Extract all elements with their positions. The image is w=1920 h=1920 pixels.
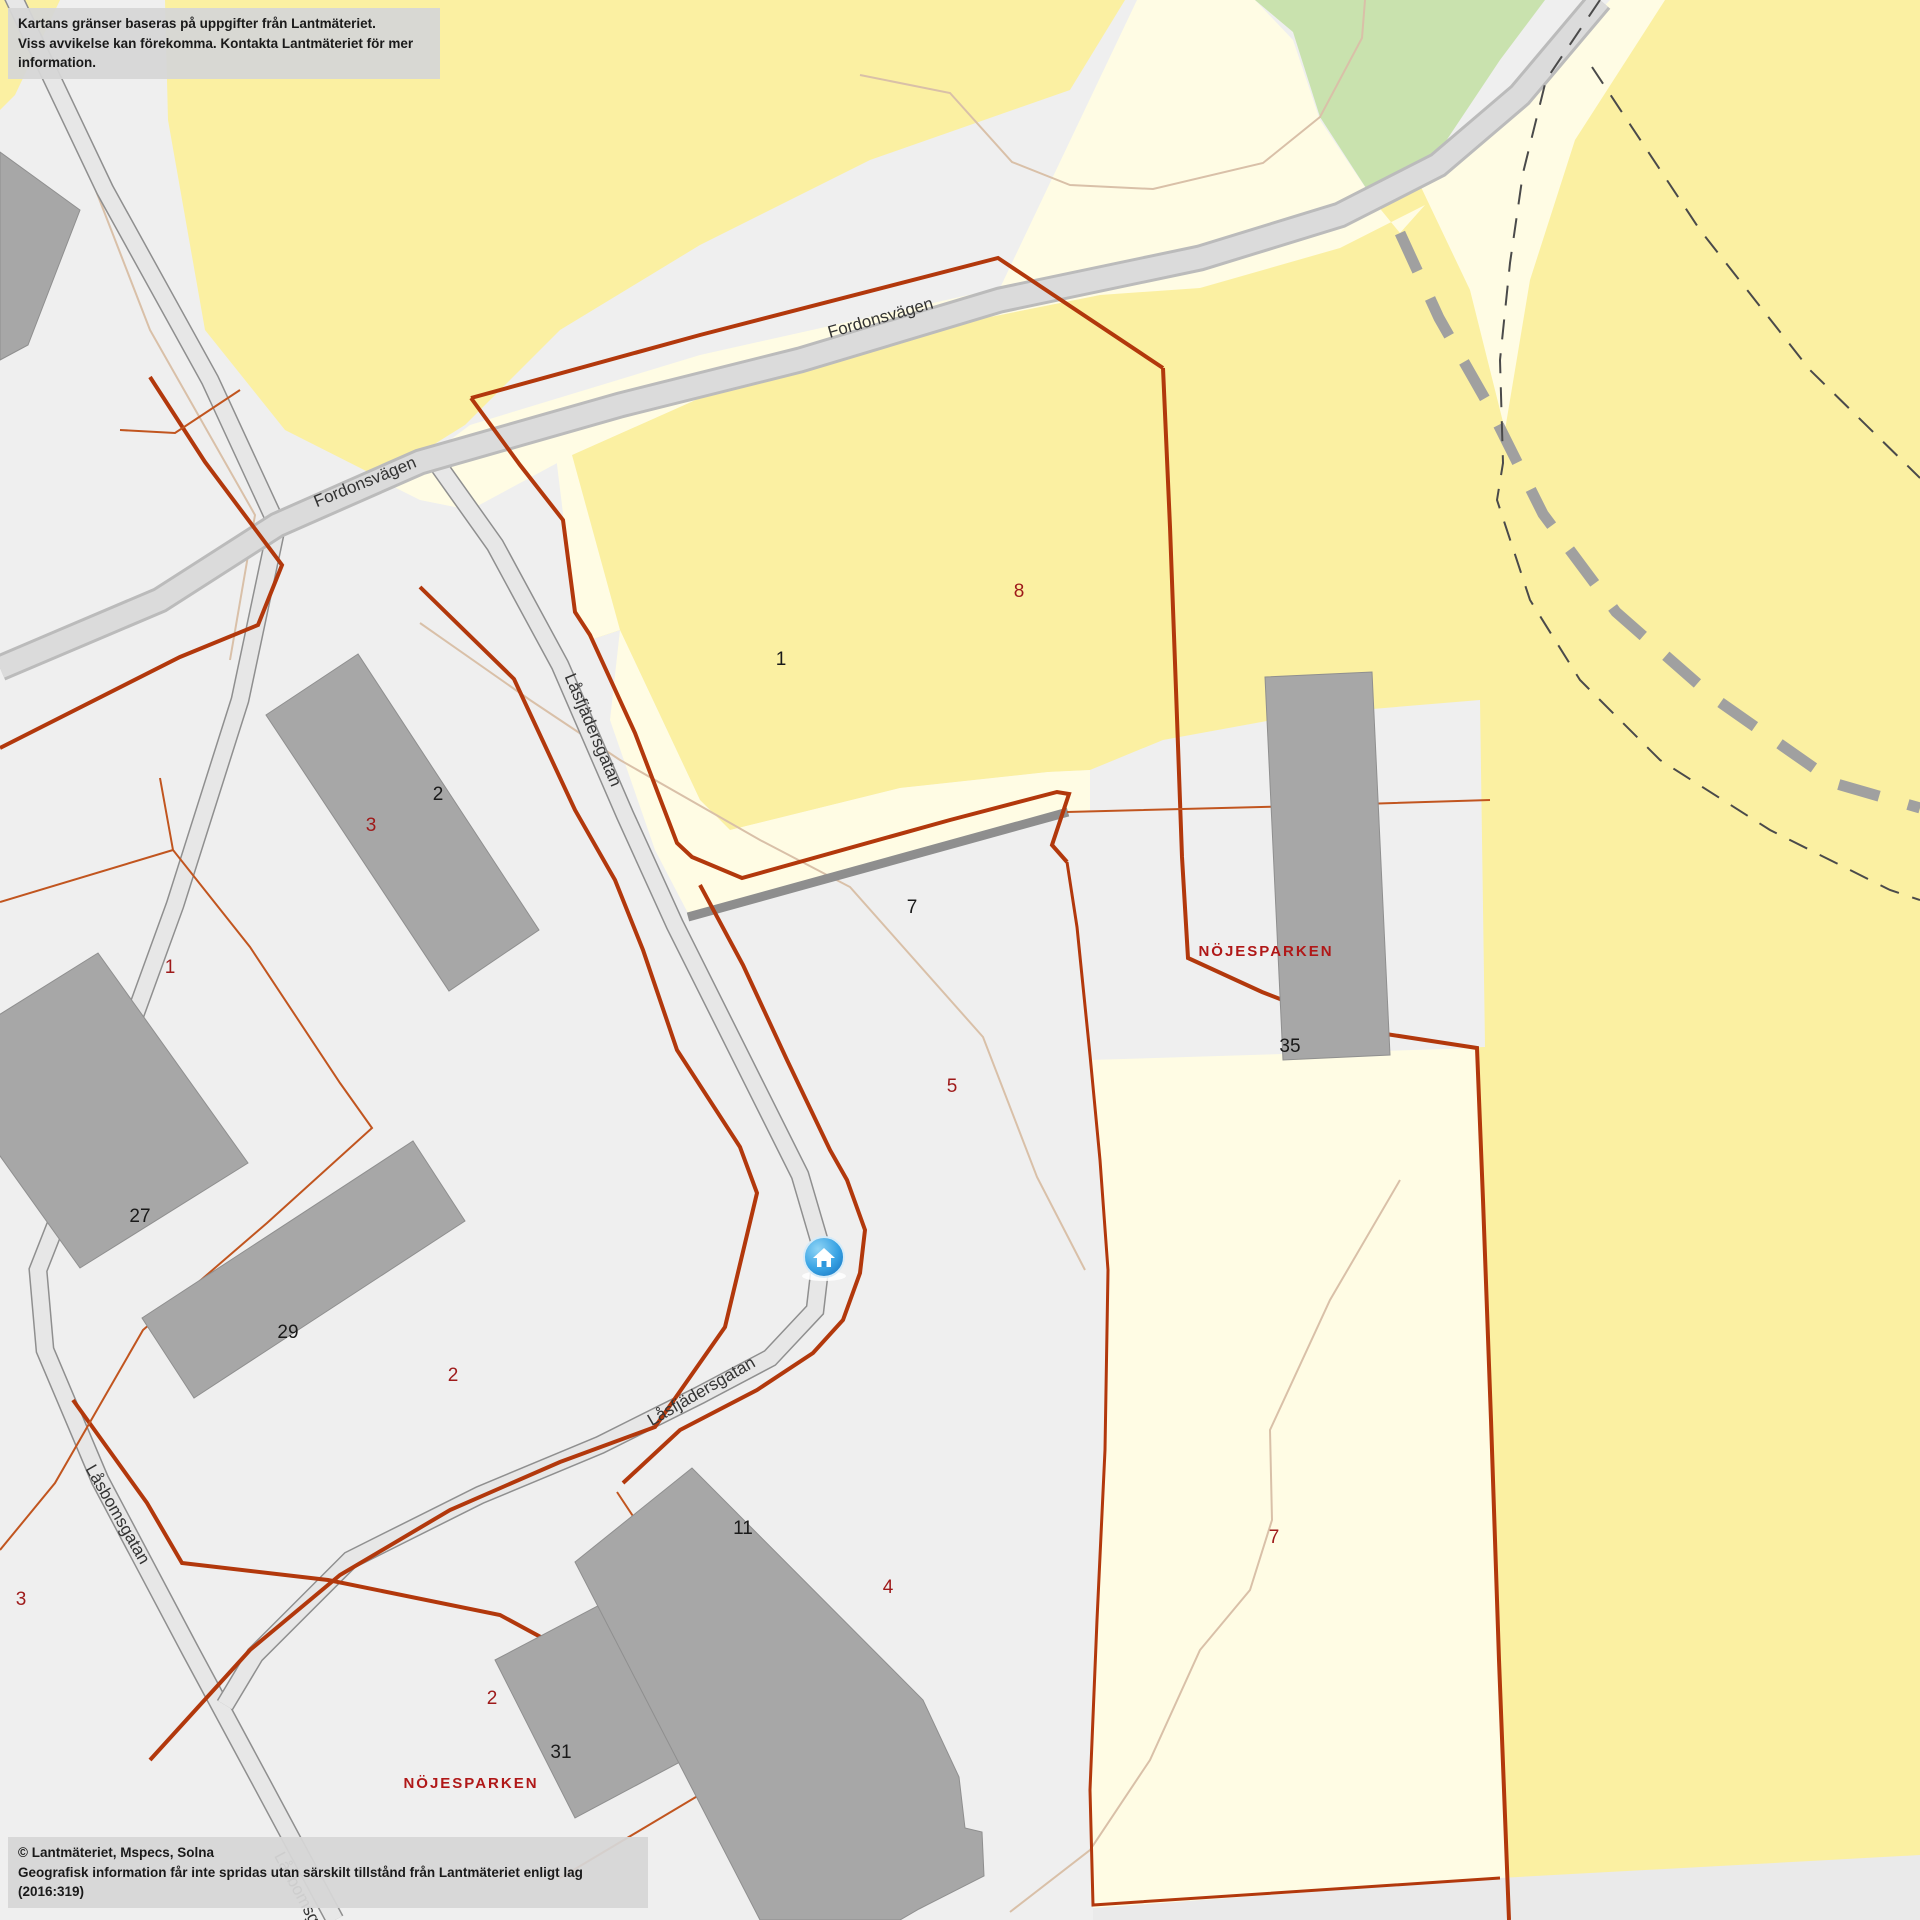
parcel-number-31: 31 [550,1742,571,1763]
parcel-number-11: 11 [733,1518,753,1539]
parcel-number-35: 35 [1279,1036,1300,1057]
map-graphic: Fordonsvägen Fordonsvägen Låsfjädersgata… [0,0,1920,1920]
area-label-nojesparken-2: NÖJESPARKEN [403,1775,538,1792]
parcel-number-red-4: 4 [883,1577,894,1598]
parcel-number-2: 2 [433,784,444,805]
attribution-line-1: © Lantmäteriet, Mspecs, Solna [18,1843,638,1863]
parcel-number-red-3a: 3 [366,815,377,836]
parcel-number-7: 7 [907,897,918,918]
building-35 [1265,672,1390,1060]
parcel-number-27: 27 [129,1206,150,1227]
parcel-number-1: 1 [776,649,787,670]
parcel-number-red-2b: 2 [487,1688,498,1709]
parcel-number-red-7: 7 [1269,1527,1280,1548]
land-cream-pocket [1089,1048,1509,1920]
map-disclaimer: Kartans gränser baseras på uppgifter frå… [8,8,440,79]
parcel-number-29: 29 [277,1322,298,1343]
disclaimer-line-1: Kartans gränser baseras på uppgifter frå… [18,14,430,34]
parcel-number-red-1: 1 [165,957,176,978]
attribution-line-2: Geografisk information får inte spridas … [18,1863,638,1902]
disclaimer-line-2: Viss avvikelse kan förekomma. Kontakta L… [18,34,430,73]
parcel-number-red-2a: 2 [448,1365,459,1386]
parcel-number-red-3b: 3 [16,1589,27,1610]
area-label-nojesparken-1: NÖJESPARKEN [1198,943,1333,960]
home-marker[interactable] [802,1237,846,1281]
map-canvas[interactable]: Fordonsvägen Fordonsvägen Låsfjädersgata… [0,0,1920,1920]
map-attribution: © Lantmäteriet, Mspecs, Solna Geografisk… [8,1837,648,1908]
parcel-number-red-5: 5 [947,1076,958,1097]
parcel-number-red-8: 8 [1014,581,1025,602]
